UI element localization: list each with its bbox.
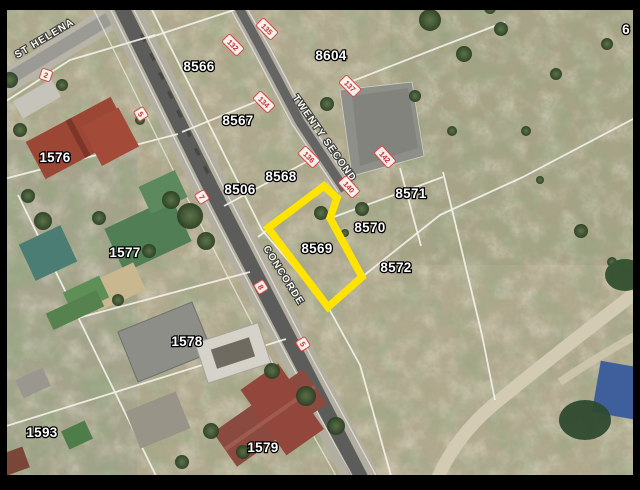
- aerial-map: ST HELENA TWENTY SECOND CONCORDE 2 5 7 1…: [0, 0, 640, 490]
- parcel-label-6: 6: [622, 22, 630, 37]
- map-viewport[interactable]: ST HELENA TWENTY SECOND CONCORDE 2 5 7 1…: [0, 0, 640, 490]
- parcel-label-8570: 8570: [354, 220, 385, 235]
- parcel-label-8604: 8604: [315, 48, 346, 63]
- parcel-label-1578: 1578: [171, 334, 202, 349]
- parcel-label-8568: 8568: [265, 169, 296, 184]
- parcel-label-8506: 8506: [224, 182, 255, 197]
- parcel-label-1579: 1579: [247, 440, 278, 455]
- parcel-label-8569: 8569: [301, 241, 332, 256]
- parcel-label-8572: 8572: [380, 260, 411, 275]
- parcel-label-1593: 1593: [26, 425, 57, 440]
- parcel-label-8571: 8571: [395, 186, 426, 201]
- parcel-label-8567: 8567: [222, 113, 253, 128]
- parcel-label-8566: 8566: [183, 59, 214, 74]
- parcel-label-1577: 1577: [109, 245, 140, 260]
- parcel-label-1576: 1576: [39, 150, 70, 165]
